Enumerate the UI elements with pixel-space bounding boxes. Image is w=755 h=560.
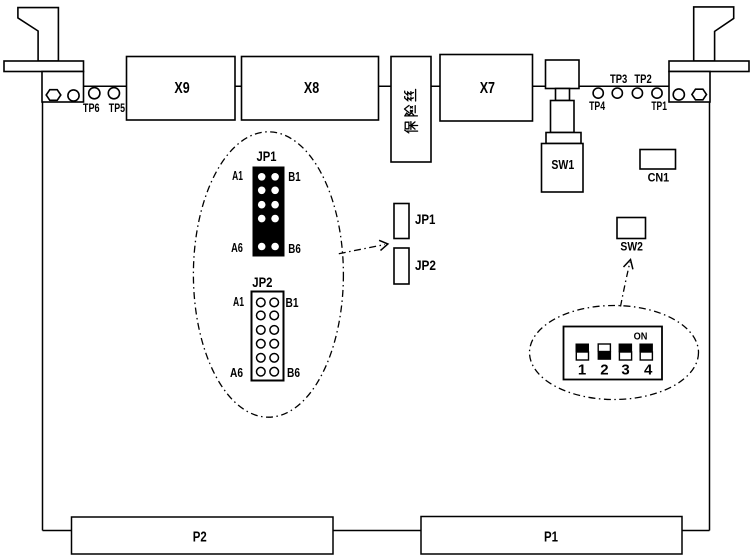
svg-text:A1: A1	[232, 168, 243, 183]
svg-text:P2: P2	[193, 530, 207, 546]
svg-text:TP6: TP6	[83, 101, 100, 115]
svg-text:B1: B1	[286, 295, 299, 310]
svg-text:P1: P1	[544, 530, 558, 546]
svg-text:ON: ON	[634, 332, 648, 343]
svg-text:X8: X8	[304, 80, 320, 97]
svg-text:TP4: TP4	[589, 99, 605, 113]
svg-text:2: 2	[600, 362, 608, 379]
svg-text:A1: A1	[233, 294, 244, 309]
svg-text:SW1: SW1	[551, 157, 574, 172]
svg-text:CN1: CN1	[648, 171, 670, 185]
svg-text:4: 4	[644, 362, 653, 379]
svg-text:A6: A6	[230, 365, 243, 380]
svg-text:TP2: TP2	[634, 72, 652, 86]
svg-text:TP5: TP5	[109, 101, 126, 115]
svg-text:X7: X7	[480, 80, 495, 97]
svg-text:B1: B1	[288, 169, 300, 184]
svg-text:JP2: JP2	[252, 274, 272, 290]
svg-text:JP1: JP1	[257, 148, 277, 164]
svg-text:X9: X9	[174, 80, 190, 97]
svg-text:JP2: JP2	[415, 257, 436, 273]
svg-text:B6: B6	[288, 241, 301, 256]
svg-text:JP1: JP1	[415, 211, 436, 227]
svg-text:TP3: TP3	[610, 72, 628, 86]
svg-text:A6: A6	[231, 240, 243, 255]
svg-text:B6: B6	[287, 365, 300, 380]
svg-text:1: 1	[578, 362, 586, 379]
svg-text:3: 3	[621, 362, 629, 379]
svg-text:TP1: TP1	[651, 99, 667, 113]
svg-text:SW2: SW2	[620, 240, 643, 254]
